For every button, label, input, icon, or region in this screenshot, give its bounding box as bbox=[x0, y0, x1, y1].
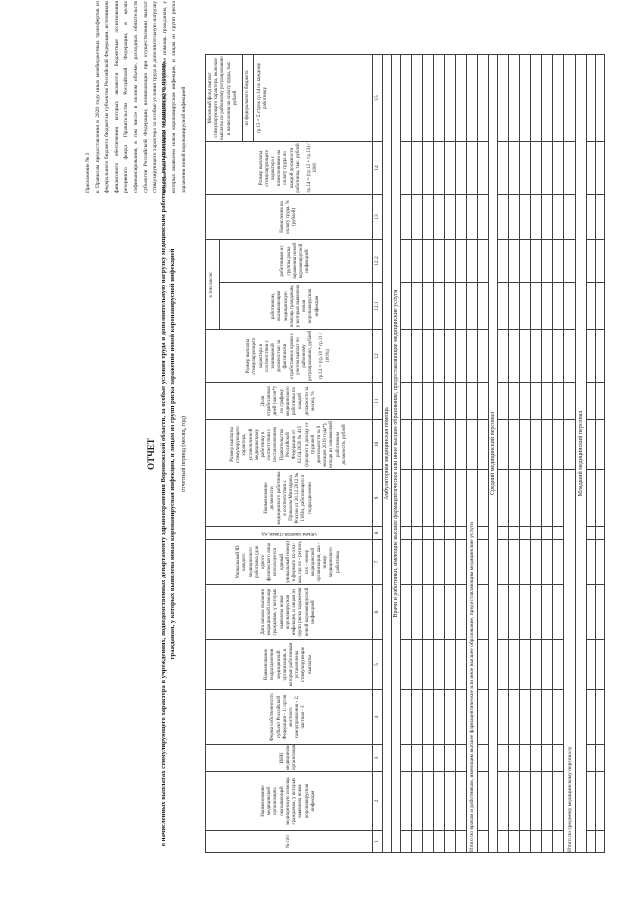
empty-cell bbox=[401, 383, 412, 420]
empty-cell bbox=[564, 142, 576, 195]
empty-cell bbox=[531, 470, 542, 527]
empty-cell bbox=[478, 772, 489, 831]
empty-cell bbox=[423, 142, 434, 195]
empty-cell bbox=[509, 640, 520, 690]
empty-cell bbox=[434, 585, 445, 640]
empty-cell bbox=[531, 55, 542, 142]
empty-cell bbox=[423, 240, 434, 283]
section-row-doctors: Врачи и работники, имеющие высшее фармац… bbox=[392, 55, 401, 853]
col-number-4: 4 bbox=[373, 690, 383, 745]
empty-cell bbox=[596, 470, 605, 527]
empty-cell bbox=[434, 383, 445, 420]
empty-cell bbox=[478, 831, 489, 853]
empty-cell bbox=[445, 55, 456, 142]
empty-cell bbox=[596, 383, 605, 420]
empty-cell bbox=[434, 772, 445, 831]
empty-cell bbox=[456, 240, 467, 283]
empty-cell bbox=[509, 745, 520, 772]
empty-cell bbox=[498, 55, 509, 142]
empty-cell bbox=[553, 330, 564, 383]
empty-cell bbox=[412, 772, 423, 831]
col-number-13: 13 bbox=[373, 195, 383, 240]
empty-cell bbox=[445, 283, 456, 330]
empty-cell bbox=[434, 831, 445, 853]
empty-cell bbox=[434, 540, 445, 585]
empty-cell bbox=[498, 330, 509, 383]
empty-cell bbox=[434, 240, 445, 283]
empty-cell bbox=[542, 383, 553, 420]
empty-cell bbox=[553, 690, 564, 745]
empty-cell bbox=[401, 745, 412, 772]
empty-data-row bbox=[553, 55, 564, 853]
empty-cell bbox=[434, 527, 445, 540]
empty-cell bbox=[412, 283, 423, 330]
empty-cell bbox=[456, 690, 467, 745]
empty-cell bbox=[520, 240, 531, 283]
empty-cell bbox=[587, 745, 596, 772]
col-header-15-text: Месячный фонд выплат стимулирующего хара… bbox=[206, 55, 242, 141]
empty-cell bbox=[456, 745, 467, 772]
col-header-12-text: Размер выплаты стимулирующего характера … bbox=[246, 331, 314, 381]
empty-data-row bbox=[587, 55, 596, 853]
empty-cell bbox=[531, 195, 542, 240]
empty-cell bbox=[509, 420, 520, 470]
empty-cell bbox=[401, 420, 412, 470]
empty-cell bbox=[456, 640, 467, 690]
col-header-15: Месячный фонд выплат стимулирующего хара… bbox=[206, 55, 373, 142]
empty-cell bbox=[542, 585, 553, 640]
col-number-8: 8 bbox=[373, 527, 383, 540]
empty-cell bbox=[587, 831, 596, 853]
empty-cell bbox=[596, 330, 605, 383]
empty-cell bbox=[423, 690, 434, 745]
empty-cell bbox=[520, 585, 531, 640]
empty-cell bbox=[553, 195, 564, 240]
empty-cell bbox=[401, 283, 412, 330]
empty-cell bbox=[542, 831, 553, 853]
empty-cell bbox=[423, 383, 434, 420]
empty-cell bbox=[564, 55, 576, 142]
empty-cell bbox=[423, 640, 434, 690]
empty-cell bbox=[478, 527, 489, 540]
empty-cell bbox=[587, 640, 596, 690]
empty-cell bbox=[498, 420, 509, 470]
empty-cell bbox=[423, 283, 434, 330]
empty-cell bbox=[423, 330, 434, 383]
group-header-including: в том числе: bbox=[206, 240, 220, 330]
empty-cell bbox=[531, 383, 542, 420]
empty-cell bbox=[553, 640, 564, 690]
empty-cell bbox=[401, 831, 412, 853]
empty-cell bbox=[587, 142, 596, 195]
empty-cell bbox=[456, 527, 467, 540]
empty-cell bbox=[423, 745, 434, 772]
empty-cell bbox=[498, 772, 509, 831]
empty-cell bbox=[509, 383, 520, 420]
empty-cell bbox=[520, 330, 531, 383]
empty-cell bbox=[467, 283, 478, 330]
col-header-12: Размер выплаты стимулирующего характера … bbox=[206, 330, 373, 383]
empty-cell bbox=[412, 640, 423, 690]
empty-cell bbox=[564, 420, 576, 470]
col-header-9: Наименование должности медицинского рабо… bbox=[206, 470, 373, 527]
section-label: Врачи и работники, имеющие высшее фармац… bbox=[392, 55, 401, 853]
rotated-landscape-sheet: Приложение № 3 к Правилам предоставления… bbox=[0, 0, 640, 905]
empty-cell bbox=[467, 330, 478, 383]
empty-cell bbox=[423, 772, 434, 831]
empty-cell bbox=[531, 690, 542, 745]
empty-cell bbox=[542, 527, 553, 540]
empty-cell bbox=[509, 690, 520, 745]
empty-cell bbox=[587, 540, 596, 585]
empty-cell bbox=[596, 690, 605, 745]
empty-cell bbox=[520, 640, 531, 690]
empty-cell bbox=[412, 470, 423, 527]
report-table: № п/п Наименование медицинской организац… bbox=[205, 54, 605, 853]
empty-cell bbox=[456, 195, 467, 240]
empty-cell bbox=[445, 540, 456, 585]
empty-cell bbox=[542, 640, 553, 690]
empty-cell bbox=[412, 690, 423, 745]
empty-cell bbox=[587, 240, 596, 283]
empty-cell bbox=[587, 527, 596, 540]
col-header-13: Начисления на оплату труда, % (рублей) bbox=[206, 195, 373, 240]
empty-data-row bbox=[542, 55, 553, 853]
empty-cell bbox=[498, 745, 509, 772]
empty-cell bbox=[434, 330, 445, 383]
empty-cell bbox=[587, 690, 596, 745]
empty-cell bbox=[498, 470, 509, 527]
empty-cell bbox=[553, 283, 564, 330]
empty-cell bbox=[509, 772, 520, 831]
empty-cell bbox=[478, 470, 489, 527]
empty-cell bbox=[553, 55, 564, 142]
empty-cell bbox=[531, 142, 542, 195]
empty-cell bbox=[434, 690, 445, 745]
empty-cell bbox=[423, 470, 434, 527]
empty-data-row bbox=[401, 55, 412, 853]
empty-cell bbox=[553, 527, 564, 540]
empty-cell bbox=[478, 745, 489, 772]
empty-cell bbox=[478, 240, 489, 283]
empty-data-row bbox=[456, 55, 467, 853]
empty-cell bbox=[401, 690, 412, 745]
col-15-budget-source: из федерального бюджета bbox=[242, 55, 254, 141]
col-number-12: 12 bbox=[373, 330, 383, 383]
empty-cell bbox=[509, 527, 520, 540]
empty-cell bbox=[478, 383, 489, 420]
header-row-top: № п/п Наименование медицинской организац… bbox=[206, 55, 220, 853]
empty-cell bbox=[478, 330, 489, 383]
empty-cell bbox=[531, 772, 542, 831]
empty-cell bbox=[509, 55, 520, 142]
empty-cell bbox=[596, 142, 605, 195]
empty-cell bbox=[456, 383, 467, 420]
empty-cell bbox=[553, 383, 564, 420]
total-row-doctors: Итого по врачам и работникам, имеющим вы… bbox=[467, 55, 478, 853]
empty-cell bbox=[434, 195, 445, 240]
total-row-label: Итого по среднему медицинскому персоналу bbox=[564, 470, 576, 853]
empty-cell bbox=[542, 195, 553, 240]
empty-cell bbox=[401, 142, 412, 195]
empty-cell bbox=[445, 383, 456, 420]
empty-cell bbox=[401, 195, 412, 240]
empty-cell bbox=[478, 640, 489, 690]
col-header-15-structure: Месячный фонд выплат стимулирующего хара… bbox=[206, 55, 371, 141]
empty-cell bbox=[412, 142, 423, 195]
empty-cell bbox=[456, 540, 467, 585]
empty-cell bbox=[531, 640, 542, 690]
col-number-5: 5 bbox=[373, 640, 383, 690]
empty-cell bbox=[596, 283, 605, 330]
empty-cell bbox=[412, 527, 423, 540]
empty-cell bbox=[531, 585, 542, 640]
empty-cell bbox=[520, 772, 531, 831]
empty-cell bbox=[456, 470, 467, 527]
empty-cell bbox=[456, 142, 467, 195]
empty-cell bbox=[498, 195, 509, 240]
col-header-10: Размер выплаты стимулирующего характера,… bbox=[206, 420, 373, 470]
empty-cell bbox=[401, 772, 412, 831]
empty-cell bbox=[542, 330, 553, 383]
empty-cell bbox=[542, 470, 553, 527]
empty-cell bbox=[553, 240, 564, 283]
col-header-2: Наименование медицинской организации, ок… bbox=[206, 772, 373, 831]
empty-cell bbox=[531, 540, 542, 585]
empty-cell bbox=[531, 330, 542, 383]
empty-cell bbox=[520, 527, 531, 540]
section-label: Амбулаторная медицинская помощь bbox=[383, 55, 392, 853]
col-header-12-2: работникам из группы риска заражения нов… bbox=[220, 240, 373, 283]
empty-cell bbox=[509, 283, 520, 330]
empty-data-row bbox=[434, 55, 445, 853]
empty-cell bbox=[520, 420, 531, 470]
empty-cell bbox=[478, 142, 489, 195]
empty-cell bbox=[531, 240, 542, 283]
empty-cell bbox=[509, 470, 520, 527]
empty-cell bbox=[498, 142, 509, 195]
empty-cell bbox=[423, 527, 434, 540]
title-block: ОТЧЕТ о начисленных выплатах стимулирующ… bbox=[146, 55, 187, 853]
col-header-12-1: работникам, оказывающим медицинскую помо… bbox=[220, 283, 373, 330]
empty-cell bbox=[509, 585, 520, 640]
col-header-11: Доля отработанных дней (часов*) по графи… bbox=[206, 383, 373, 420]
empty-cell bbox=[520, 55, 531, 142]
empty-cell bbox=[401, 640, 412, 690]
col-header-7: Уникальный ID каждого медицинского работ… bbox=[206, 540, 373, 585]
empty-cell bbox=[498, 640, 509, 690]
empty-cell bbox=[596, 527, 605, 540]
empty-cell bbox=[434, 420, 445, 470]
empty-data-row bbox=[412, 55, 423, 853]
empty-cell bbox=[520, 383, 531, 420]
empty-cell bbox=[478, 195, 489, 240]
empty-cell bbox=[542, 540, 553, 585]
col-number-1: 1 bbox=[373, 831, 383, 853]
empty-cell bbox=[553, 831, 564, 853]
section-label: Младший медицинский персонал bbox=[576, 55, 587, 853]
empty-cell bbox=[498, 283, 509, 330]
empty-cell bbox=[531, 527, 542, 540]
empty-cell bbox=[401, 585, 412, 640]
empty-cell bbox=[553, 585, 564, 640]
empty-cell bbox=[478, 420, 489, 470]
col-header-3: ИНН медицинской организации bbox=[206, 745, 373, 772]
empty-cell bbox=[509, 330, 520, 383]
col-14-formula: гр.14 = (гр.12 + гр.13) / 1000 bbox=[307, 143, 319, 193]
col-number-11: 11 bbox=[373, 383, 383, 420]
empty-cell bbox=[423, 195, 434, 240]
empty-data-row bbox=[445, 55, 456, 853]
empty-cell bbox=[596, 195, 605, 240]
empty-cell bbox=[520, 142, 531, 195]
empty-cell bbox=[531, 745, 542, 772]
col-header-8: Объем занятой ставки, ед. bbox=[206, 527, 373, 540]
empty-cell bbox=[542, 240, 553, 283]
empty-cell bbox=[498, 831, 509, 853]
empty-cell bbox=[456, 831, 467, 853]
empty-cell bbox=[509, 240, 520, 283]
empty-cell bbox=[596, 540, 605, 585]
empty-cell bbox=[401, 240, 412, 283]
empty-cell bbox=[445, 240, 456, 283]
empty-cell bbox=[498, 527, 509, 540]
empty-cell bbox=[520, 195, 531, 240]
empty-cell bbox=[445, 585, 456, 640]
empty-cell bbox=[434, 142, 445, 195]
empty-cell bbox=[564, 240, 576, 283]
empty-cell bbox=[553, 470, 564, 527]
empty-cell bbox=[564, 195, 576, 240]
empty-cell bbox=[596, 55, 605, 142]
col-header-5: Наименование подразделения медицинской о… bbox=[206, 640, 373, 690]
empty-cell bbox=[445, 690, 456, 745]
empty-cell bbox=[412, 540, 423, 585]
period-note: отчетный период (месяц, год) bbox=[181, 55, 187, 853]
empty-cell bbox=[467, 240, 478, 283]
col-15-formula: гр.15 = Σ строк гр.14 по каждому работни… bbox=[254, 55, 272, 141]
empty-data-row bbox=[531, 55, 542, 853]
col-number-7: 7 bbox=[373, 540, 383, 585]
empty-cell bbox=[467, 420, 478, 470]
empty-cell bbox=[478, 585, 489, 640]
empty-cell bbox=[445, 831, 456, 853]
empty-cell bbox=[478, 283, 489, 330]
empty-cell bbox=[553, 772, 564, 831]
empty-cell bbox=[445, 745, 456, 772]
empty-cell bbox=[542, 745, 553, 772]
empty-cell bbox=[412, 240, 423, 283]
col-header-6: Дата начала оказания медицинской помощи … bbox=[206, 585, 373, 640]
empty-cell bbox=[587, 283, 596, 330]
empty-cell bbox=[434, 470, 445, 527]
empty-cell bbox=[587, 772, 596, 831]
empty-data-row bbox=[478, 55, 489, 853]
empty-cell bbox=[445, 142, 456, 195]
empty-cell bbox=[520, 831, 531, 853]
empty-cell bbox=[467, 142, 478, 195]
empty-cell bbox=[445, 420, 456, 470]
col-header-4: Форма собственности: субъект Российской … bbox=[206, 690, 373, 745]
empty-cell bbox=[412, 55, 423, 142]
empty-cell bbox=[412, 745, 423, 772]
empty-cell bbox=[509, 540, 520, 585]
empty-cell bbox=[520, 690, 531, 745]
empty-cell bbox=[434, 55, 445, 142]
empty-cell bbox=[401, 330, 412, 383]
section-row-ambulatory: Амбулаторная медицинская помощь bbox=[383, 55, 392, 853]
empty-cell bbox=[531, 831, 542, 853]
empty-cell bbox=[456, 772, 467, 831]
empty-cell bbox=[456, 420, 467, 470]
empty-cell bbox=[587, 420, 596, 470]
empty-cell bbox=[587, 383, 596, 420]
col-number-14: 14 bbox=[373, 142, 383, 195]
empty-cell bbox=[553, 745, 564, 772]
empty-cell bbox=[412, 831, 423, 853]
empty-cell bbox=[531, 420, 542, 470]
empty-cell bbox=[596, 831, 605, 853]
empty-data-row bbox=[596, 55, 605, 853]
empty-data-row bbox=[520, 55, 531, 853]
empty-cell bbox=[401, 470, 412, 527]
empty-cell bbox=[564, 383, 576, 420]
empty-cell bbox=[467, 383, 478, 420]
empty-cell bbox=[412, 383, 423, 420]
empty-cell bbox=[478, 55, 489, 142]
empty-cell bbox=[445, 527, 456, 540]
col-number-6: 6 bbox=[373, 585, 383, 640]
empty-cell bbox=[498, 240, 509, 283]
empty-cell bbox=[587, 195, 596, 240]
empty-cell bbox=[412, 420, 423, 470]
empty-cell bbox=[434, 283, 445, 330]
col-header-1: № п/п bbox=[206, 831, 373, 853]
empty-cell bbox=[553, 540, 564, 585]
empty-cell bbox=[542, 772, 553, 831]
empty-cell bbox=[478, 540, 489, 585]
empty-cell bbox=[456, 330, 467, 383]
empty-cell bbox=[596, 585, 605, 640]
empty-cell bbox=[498, 540, 509, 585]
empty-cell bbox=[587, 55, 596, 142]
empty-data-row bbox=[423, 55, 434, 853]
empty-data-row bbox=[509, 55, 520, 853]
col-header-14: Размер выплаты стимулирующего характера … bbox=[206, 142, 373, 195]
section-row-middle-personnel: Средний медицинский персонал bbox=[489, 55, 498, 853]
empty-cell bbox=[434, 745, 445, 772]
empty-cell bbox=[456, 55, 467, 142]
column-numbers-row: 1 2 3 4 5 6 7 8 9 10 11 12 12.1 12.2 13 … bbox=[373, 55, 383, 853]
total-row-middle-personnel: Итого по среднему медицинскому персоналу bbox=[564, 55, 576, 853]
empty-cell bbox=[467, 195, 478, 240]
empty-cell bbox=[423, 55, 434, 142]
empty-cell bbox=[423, 540, 434, 585]
empty-cell bbox=[542, 283, 553, 330]
empty-cell bbox=[445, 640, 456, 690]
empty-cell bbox=[542, 142, 553, 195]
empty-cell bbox=[509, 195, 520, 240]
total-row-label: Итого по врачам и работникам, имеющим вы… bbox=[467, 470, 478, 853]
col-number-3: 3 bbox=[373, 745, 383, 772]
col-number-10: 10 bbox=[373, 420, 383, 470]
section-label: Средний медицинский персонал bbox=[489, 55, 498, 853]
empty-cell bbox=[412, 330, 423, 383]
empty-cell bbox=[445, 470, 456, 527]
empty-cell bbox=[596, 240, 605, 283]
col-number-15: 15 bbox=[373, 55, 383, 142]
page-subtitle: о начисленных выплатах стимулирующего ха… bbox=[159, 55, 177, 853]
